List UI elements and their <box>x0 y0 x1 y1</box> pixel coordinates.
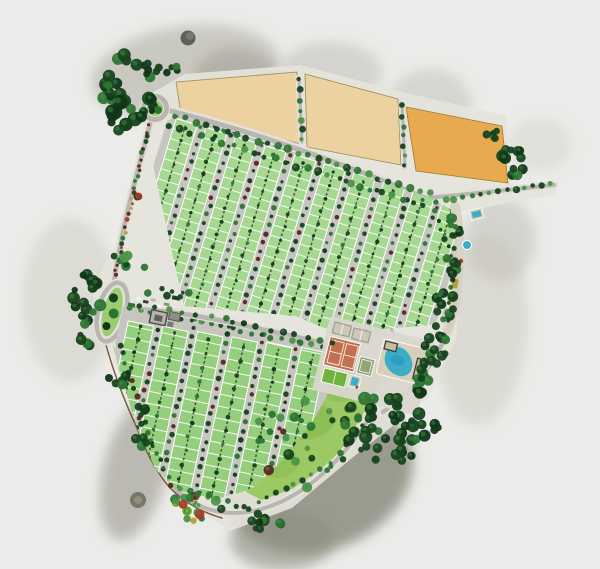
ink-blot <box>181 31 196 46</box>
tree <box>447 301 451 305</box>
tree <box>115 97 121 103</box>
tree <box>242 135 249 142</box>
tree <box>420 203 425 208</box>
tree <box>443 337 447 341</box>
tree <box>338 176 343 181</box>
tree <box>491 134 499 142</box>
tree <box>70 294 75 299</box>
tree <box>123 373 127 377</box>
tree <box>345 436 350 441</box>
tree <box>267 428 274 435</box>
tree <box>493 128 500 135</box>
tree <box>402 163 406 167</box>
tree <box>449 305 457 313</box>
tree <box>241 146 248 153</box>
tree <box>219 506 222 509</box>
tree <box>234 504 239 509</box>
tree <box>367 405 372 410</box>
tree <box>344 165 347 168</box>
tree <box>276 143 279 146</box>
tree <box>133 61 138 66</box>
tree <box>140 435 144 439</box>
tree <box>315 155 322 162</box>
tree <box>442 350 449 357</box>
tree <box>178 294 183 299</box>
tree <box>268 328 273 333</box>
tree <box>193 312 198 317</box>
tree <box>265 141 270 146</box>
tree <box>297 86 304 93</box>
tree <box>166 123 172 129</box>
tree <box>106 89 110 93</box>
tree <box>548 181 553 186</box>
tree <box>429 358 433 362</box>
tree <box>437 219 441 223</box>
tree <box>325 158 331 164</box>
tree <box>422 343 426 347</box>
tree <box>522 186 527 191</box>
tree <box>316 168 319 171</box>
tree <box>139 159 142 162</box>
tree <box>398 430 402 434</box>
tree <box>305 335 311 341</box>
tree <box>182 114 188 120</box>
tree <box>190 518 196 524</box>
tree <box>399 102 405 108</box>
tree <box>309 472 313 476</box>
tree <box>495 188 501 194</box>
tree <box>487 191 492 196</box>
tree <box>449 232 455 238</box>
tree <box>260 438 265 443</box>
tree <box>277 520 281 524</box>
wash-ne-far <box>508 119 572 171</box>
tree <box>366 416 369 419</box>
tree <box>130 198 133 201</box>
tree <box>124 231 128 235</box>
tree <box>154 451 159 456</box>
tree <box>168 483 173 488</box>
tree <box>159 457 164 462</box>
tree <box>213 497 217 501</box>
tree <box>308 455 315 462</box>
tree <box>285 451 289 455</box>
tree <box>144 139 149 144</box>
tree <box>187 495 190 498</box>
tree <box>432 322 440 330</box>
tree <box>100 94 105 99</box>
tree <box>105 374 113 382</box>
tree <box>395 436 400 441</box>
tree <box>386 395 391 400</box>
tree <box>210 136 215 141</box>
tree <box>280 429 286 435</box>
tree <box>449 293 453 297</box>
tree <box>122 361 127 366</box>
tree <box>470 193 475 198</box>
tree <box>273 490 279 496</box>
tree <box>297 98 303 104</box>
tree <box>180 311 184 315</box>
tree <box>163 69 171 77</box>
tree <box>396 182 399 185</box>
tree <box>241 320 247 326</box>
tree <box>421 361 424 364</box>
tree <box>283 485 289 491</box>
tree <box>172 499 180 507</box>
tree <box>342 421 346 425</box>
tree <box>408 417 415 424</box>
tree <box>80 272 87 279</box>
tree <box>337 450 344 457</box>
tree <box>414 436 417 439</box>
tree <box>431 421 435 425</box>
tree <box>120 236 125 241</box>
tree <box>401 133 405 137</box>
tree <box>209 313 214 318</box>
tree <box>281 330 284 333</box>
tree <box>437 292 443 298</box>
tree <box>108 107 114 113</box>
tree <box>358 447 364 453</box>
tree <box>308 423 312 427</box>
tree <box>299 137 303 141</box>
tree <box>276 413 284 421</box>
tree <box>403 153 407 157</box>
tree <box>120 246 123 249</box>
tree <box>451 260 455 264</box>
tree <box>252 323 259 330</box>
tree <box>80 299 84 303</box>
tree <box>361 394 366 399</box>
master-plan-illustration <box>0 0 600 569</box>
tree <box>285 146 289 150</box>
tree <box>295 151 301 157</box>
tree <box>89 308 96 315</box>
tree <box>80 319 90 329</box>
tree <box>390 412 394 416</box>
tree <box>432 208 437 213</box>
tree <box>411 200 416 205</box>
tree <box>503 146 507 150</box>
tree <box>367 171 370 174</box>
tree <box>372 456 380 464</box>
tree <box>418 374 426 382</box>
tree <box>194 501 198 505</box>
tree <box>177 486 182 491</box>
tree <box>305 446 311 452</box>
tree <box>483 130 491 138</box>
tree <box>450 271 454 275</box>
tree <box>399 438 406 445</box>
tree <box>135 393 141 399</box>
tree <box>115 126 119 130</box>
tree <box>137 303 143 309</box>
tree <box>441 236 447 242</box>
tree <box>116 90 121 95</box>
tree <box>96 301 101 306</box>
tree <box>514 187 517 190</box>
tree <box>539 182 545 188</box>
tree <box>72 303 76 307</box>
tree <box>393 451 397 455</box>
tree <box>246 506 252 512</box>
tree <box>443 196 450 203</box>
tree <box>326 408 332 414</box>
tree <box>127 212 131 216</box>
tree <box>400 144 406 150</box>
tree <box>349 181 352 184</box>
tree <box>383 436 387 440</box>
master-plan-canvas <box>0 0 600 569</box>
tree <box>144 66 152 74</box>
tree <box>439 228 443 232</box>
tree <box>167 475 172 480</box>
tree <box>355 168 358 171</box>
tree <box>291 414 295 418</box>
tree <box>138 169 142 173</box>
tree <box>78 336 82 340</box>
tree <box>433 199 438 204</box>
tree <box>519 166 523 170</box>
tree <box>225 129 231 135</box>
tree <box>269 411 276 418</box>
tree <box>137 164 141 168</box>
tree <box>274 155 277 158</box>
tree <box>421 432 426 437</box>
tree <box>166 306 172 312</box>
tree <box>431 347 435 351</box>
tree <box>374 445 378 449</box>
tree <box>329 461 333 465</box>
tree <box>251 150 257 156</box>
tree <box>121 406 125 410</box>
tree <box>133 179 137 183</box>
tree <box>362 433 367 438</box>
tree <box>256 139 259 142</box>
tree <box>348 404 352 408</box>
tree <box>293 458 296 461</box>
tree <box>172 114 177 119</box>
tree <box>340 456 346 462</box>
tree <box>385 179 391 185</box>
tree <box>448 285 453 290</box>
tree <box>290 482 295 487</box>
tree <box>434 294 438 298</box>
tree <box>433 308 441 316</box>
tree <box>105 72 110 77</box>
tree <box>131 386 136 391</box>
tree <box>298 418 304 424</box>
tree <box>329 417 335 423</box>
tree <box>233 131 240 138</box>
tree <box>139 150 144 155</box>
tree <box>138 443 142 447</box>
tree <box>82 321 86 325</box>
tree <box>144 289 152 297</box>
tree <box>447 244 451 248</box>
tree <box>118 343 124 349</box>
tree <box>501 154 506 159</box>
tree <box>194 120 197 123</box>
tree <box>508 147 515 154</box>
tree <box>197 503 201 507</box>
tree <box>393 395 398 400</box>
tree <box>304 484 308 488</box>
bush-ring-sw <box>130 492 146 508</box>
tree <box>249 518 253 522</box>
round-pool <box>463 241 472 250</box>
tree <box>186 131 192 137</box>
tree <box>265 495 269 499</box>
tree <box>417 188 423 194</box>
tree <box>162 466 166 470</box>
tree <box>478 192 483 197</box>
tree <box>517 148 521 152</box>
tree <box>330 340 335 345</box>
tree <box>128 106 132 110</box>
tree <box>440 316 446 322</box>
tree <box>257 500 261 504</box>
tree <box>180 501 184 505</box>
tree <box>138 113 143 118</box>
tree <box>122 120 127 125</box>
tree <box>141 407 149 415</box>
tree <box>266 467 270 471</box>
tree <box>147 95 151 99</box>
tree <box>401 125 406 130</box>
tree <box>452 246 457 251</box>
tree <box>298 109 302 113</box>
tree <box>219 141 222 144</box>
tree <box>89 285 93 289</box>
tree <box>177 126 180 129</box>
tree <box>402 423 406 427</box>
tree <box>254 510 262 518</box>
tree <box>460 194 465 199</box>
tree <box>132 186 136 190</box>
tree <box>425 377 429 381</box>
tree <box>447 222 454 229</box>
tree <box>185 289 193 297</box>
tree <box>206 491 213 498</box>
tree <box>151 444 155 448</box>
tree <box>183 515 190 522</box>
tree <box>114 273 118 277</box>
tree <box>163 292 171 300</box>
tree <box>174 503 177 506</box>
tree <box>351 428 355 432</box>
tree <box>93 280 98 285</box>
tree <box>255 418 263 426</box>
tree <box>198 132 205 139</box>
tree <box>299 126 306 133</box>
tree <box>306 165 309 168</box>
tree <box>147 123 150 126</box>
tree <box>232 143 237 148</box>
tree <box>145 134 150 139</box>
tree <box>203 122 210 129</box>
tree <box>122 255 126 259</box>
tree <box>375 177 380 182</box>
tree <box>354 415 362 423</box>
tree <box>456 232 461 237</box>
tree <box>446 310 450 314</box>
tree <box>450 196 457 203</box>
tree <box>400 197 406 203</box>
tree <box>408 185 411 188</box>
tree <box>305 152 311 158</box>
tree <box>214 126 220 132</box>
tree <box>121 350 126 355</box>
tree <box>261 155 266 160</box>
tree <box>449 215 453 219</box>
tree <box>409 453 412 456</box>
tree <box>399 114 405 120</box>
tree <box>282 434 289 441</box>
tree <box>120 50 125 55</box>
tree <box>153 68 160 75</box>
tree <box>426 335 430 339</box>
tree <box>299 477 305 483</box>
tree <box>510 165 518 173</box>
tree <box>125 217 130 222</box>
tree <box>141 264 148 271</box>
tree <box>135 193 142 200</box>
tree <box>113 269 116 272</box>
tree <box>371 395 375 399</box>
tree <box>255 518 263 526</box>
tree <box>190 498 194 502</box>
tree <box>317 337 324 344</box>
tree <box>530 183 535 188</box>
tree <box>130 114 136 120</box>
tree <box>334 162 340 168</box>
tree <box>79 313 82 316</box>
tree <box>415 409 420 414</box>
tree <box>111 253 118 260</box>
tree <box>170 289 175 294</box>
tree <box>298 117 305 124</box>
tree <box>225 498 231 504</box>
tree <box>419 421 423 425</box>
tree <box>293 165 296 168</box>
tree <box>177 496 180 499</box>
tree <box>291 331 297 337</box>
tree <box>253 525 259 531</box>
tree <box>133 436 137 440</box>
tree <box>197 511 201 515</box>
tree <box>130 207 133 210</box>
tree <box>119 381 123 385</box>
tree <box>116 264 119 267</box>
tree <box>369 425 373 429</box>
tree <box>72 287 78 293</box>
tree <box>283 160 288 165</box>
tree <box>296 77 300 81</box>
tree <box>104 81 112 89</box>
tree <box>302 398 306 402</box>
tree <box>317 466 323 472</box>
tree <box>130 378 135 383</box>
tree <box>159 286 164 291</box>
tree <box>173 63 181 71</box>
tree <box>138 421 144 427</box>
tree <box>123 225 127 229</box>
tree <box>357 184 360 187</box>
tree <box>194 496 197 499</box>
tree <box>324 172 329 177</box>
